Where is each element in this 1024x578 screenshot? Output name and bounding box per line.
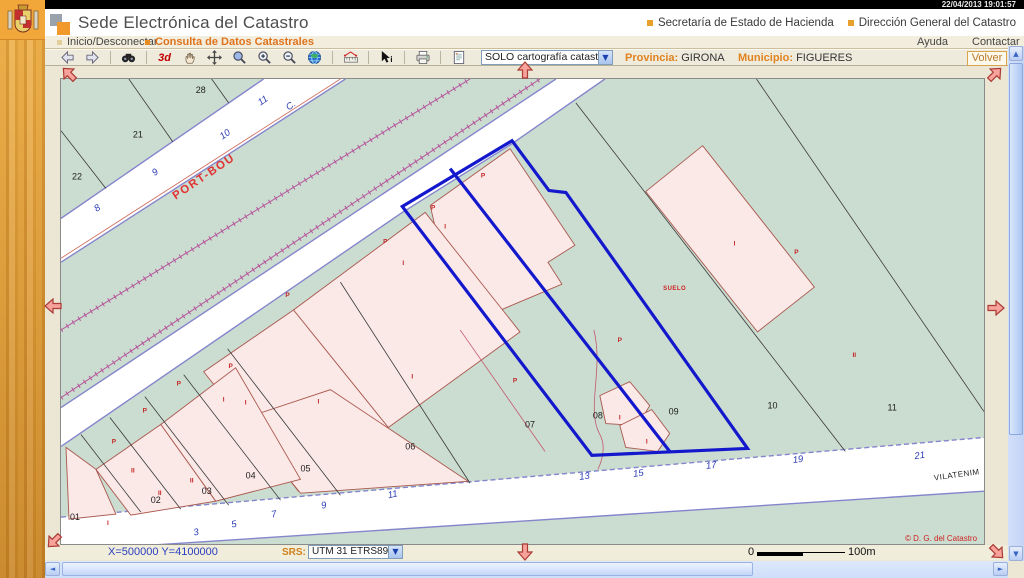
full-extent-button[interactable] (305, 50, 324, 66)
search-button[interactable] (119, 50, 138, 66)
map-label-mark: I (107, 520, 109, 527)
map-label-mark: I (619, 415, 621, 422)
chevron-down-icon[interactable]: ▼ (388, 546, 402, 558)
srs-label: SRS: (282, 547, 306, 558)
chevron-down-icon[interactable]: ▼ (598, 51, 612, 64)
scroll-down-button[interactable]: ▼ (1009, 546, 1023, 561)
map-label-parcel: 28 (196, 85, 206, 95)
map-label-snum: 21 (913, 450, 926, 462)
scale-thick-segment (757, 552, 803, 556)
map-label-parcel: 11 (888, 403, 897, 413)
map-label-mark: P (481, 173, 486, 180)
map-label-parcel: 10 (767, 401, 777, 411)
cursor-coordinates: X=500000 Y=4100000 (108, 546, 218, 558)
bullet-icon (57, 40, 62, 45)
map-label-parcel: 08 (593, 411, 603, 421)
provincia-value: GIRONA (681, 52, 724, 64)
svg-text:i: i (390, 54, 392, 64)
map-label-mark: II (158, 490, 162, 497)
map-label-mark: I (646, 438, 648, 445)
zoom-out-button[interactable] (280, 50, 299, 66)
menubar: Inicio/Desconectar Consulta de Datos Cat… (45, 36, 1024, 49)
map-area: 2821220102030405060708091011891011C.3579… (45, 66, 1008, 560)
map-label-parcel: 06 (405, 441, 415, 451)
coat-of-arms-icon (6, 3, 40, 37)
srs-value: UTM 31 ETRS89 (312, 546, 388, 557)
page-title: Sede Electrónica del Catastro (78, 13, 309, 33)
info-cursor-icon: i (379, 50, 394, 65)
forward-arrow-icon (85, 50, 100, 65)
binoculars-icon (121, 51, 136, 64)
bullet-icon (848, 20, 854, 26)
toolbar-separator (440, 51, 441, 64)
volver-button[interactable]: Volver (967, 51, 1007, 66)
map-label-mark: I (444, 223, 446, 230)
map-label-parcel: 03 (202, 486, 212, 496)
map-label-mark: P (618, 337, 623, 344)
scroll-right-button[interactable]: ► (993, 562, 1008, 576)
hand-pan-icon (183, 51, 197, 65)
map-label-mark: P (177, 381, 182, 388)
map-label-mark: P (285, 292, 290, 299)
horizontal-scrollbar[interactable]: ◄ ► (45, 561, 1008, 578)
map-label-mark: P (513, 378, 518, 385)
scale-end: 100m (848, 546, 876, 558)
3d-icon: 3d (158, 52, 171, 64)
zoom-out-icon (282, 50, 297, 65)
toolbar: 3d (45, 49, 1024, 66)
map-label-parcel: 22 (72, 172, 82, 182)
zoom-in-button[interactable] (255, 50, 274, 66)
toolbar-separator (146, 51, 147, 64)
view-3d-button[interactable]: 3d (155, 50, 174, 66)
info-tool-button[interactable]: i (377, 50, 396, 66)
zoom-select-button[interactable] (230, 50, 249, 66)
map-label-mark: P (794, 249, 799, 256)
map-label-mark: I (734, 240, 736, 247)
map-label-mark: I (245, 400, 247, 407)
printer-icon (415, 50, 431, 65)
document-icon (452, 50, 466, 65)
map-label-mark: P (228, 363, 233, 370)
vertical-scrollbar[interactable]: ▲ ▼ (1008, 46, 1024, 561)
report-button[interactable] (449, 50, 468, 66)
forward-button[interactable] (83, 50, 102, 66)
print-button[interactable] (413, 50, 432, 66)
cadastral-map[interactable]: 2821220102030405060708091011891011C.3579… (60, 78, 985, 545)
magnifier-select-icon (232, 50, 247, 65)
bullet-icon (647, 20, 653, 26)
pan-tool-button[interactable] (180, 50, 199, 66)
map-label-mark: P (112, 438, 117, 445)
map-label-mark: II (190, 477, 194, 484)
map-label-parcel: 09 (669, 407, 679, 417)
map-label-mark: I (318, 399, 320, 406)
pan-down-arrow[interactable] (517, 542, 533, 562)
link-direccion-catastro[interactable]: Dirección General del Catastro (848, 17, 1016, 29)
catastro-logo-icon (50, 14, 76, 36)
map-label-parcel: 04 (246, 470, 256, 480)
map-label-mark: I (402, 260, 404, 267)
pan-up-arrow[interactable] (517, 60, 533, 80)
titlebar: 22/04/2013 19:01:57 (45, 0, 1024, 9)
map-label-mark: I (411, 374, 413, 381)
link-secretaria-hacienda[interactable]: Secretaría de Estado de Hacienda (647, 17, 834, 29)
map-label-mark: P (383, 238, 388, 245)
map-label-copy: © D. G. del Catastro (905, 534, 978, 543)
map-label-parcel: 21 (133, 130, 143, 140)
toolbar-separator (110, 51, 111, 64)
srs-dropdown[interactable]: UTM 31 ETRS89 ▼ (308, 545, 403, 559)
layer-select-dropdown[interactable]: SOLO cartografía catastral ▼ (481, 50, 613, 65)
vertical-scrollbar-thumb[interactable] (1009, 63, 1023, 435)
map-label-mark: I (223, 397, 225, 404)
pan-right-arrow[interactable] (986, 300, 1006, 316)
map-label-parcel: 01 (70, 512, 80, 522)
horizontal-scrollbar-thumb[interactable] (62, 562, 753, 576)
zoom-in-icon (257, 50, 272, 65)
scrollbar-corner (1008, 561, 1024, 578)
toolbar-separator (404, 51, 405, 64)
menu-item-inicio[interactable]: Inicio/Desconectar (57, 36, 158, 48)
move-tool-button[interactable] (205, 50, 224, 66)
globe-icon (307, 50, 322, 65)
scroll-left-button[interactable]: ◄ (45, 562, 60, 576)
pan-left-arrow[interactable] (43, 298, 63, 314)
sidebar-city-image (0, 0, 45, 578)
municipio-label: Municipio: (738, 52, 793, 64)
spain-coat-of-arms-logo (0, 0, 45, 40)
map-label-mark: II (131, 467, 135, 474)
menu-item-ayuda[interactable]: Ayuda (917, 36, 948, 48)
map-label-parcel: 07 (525, 420, 535, 430)
menu-item-consulta-datos[interactable]: Consulta de Datos Catastrales (145, 36, 314, 48)
map-label-suelo: SUELO (663, 286, 686, 292)
map-label-parcel: 05 (300, 463, 310, 473)
map-label-mark: P (431, 204, 436, 211)
header: Sede Electrónica del Catastro Secretaría… (45, 9, 1024, 36)
move-cross-icon (207, 50, 222, 65)
toolbar-separator (368, 51, 369, 64)
scale-start: 0 (748, 546, 754, 558)
measure-button[interactable] (341, 50, 360, 66)
titlebar-timestamp: 22/04/2013 19:01:57 (942, 0, 1016, 9)
toolbar-separator (332, 51, 333, 64)
map-label-mark: P (143, 408, 148, 415)
provincia-label: Provincia: (625, 52, 678, 64)
scroll-up-button[interactable]: ▲ (1009, 46, 1023, 61)
bullet-icon (145, 40, 150, 45)
catastro-app: 22/04/2013 19:01:57 Sede Electrónica del… (0, 0, 1024, 578)
layer-select-value: SOLO cartografía catastral (485, 51, 610, 63)
municipio-value: FIGUERES (796, 52, 852, 64)
measure-ruler-icon (343, 51, 359, 65)
map-label-mark: II (852, 352, 856, 359)
